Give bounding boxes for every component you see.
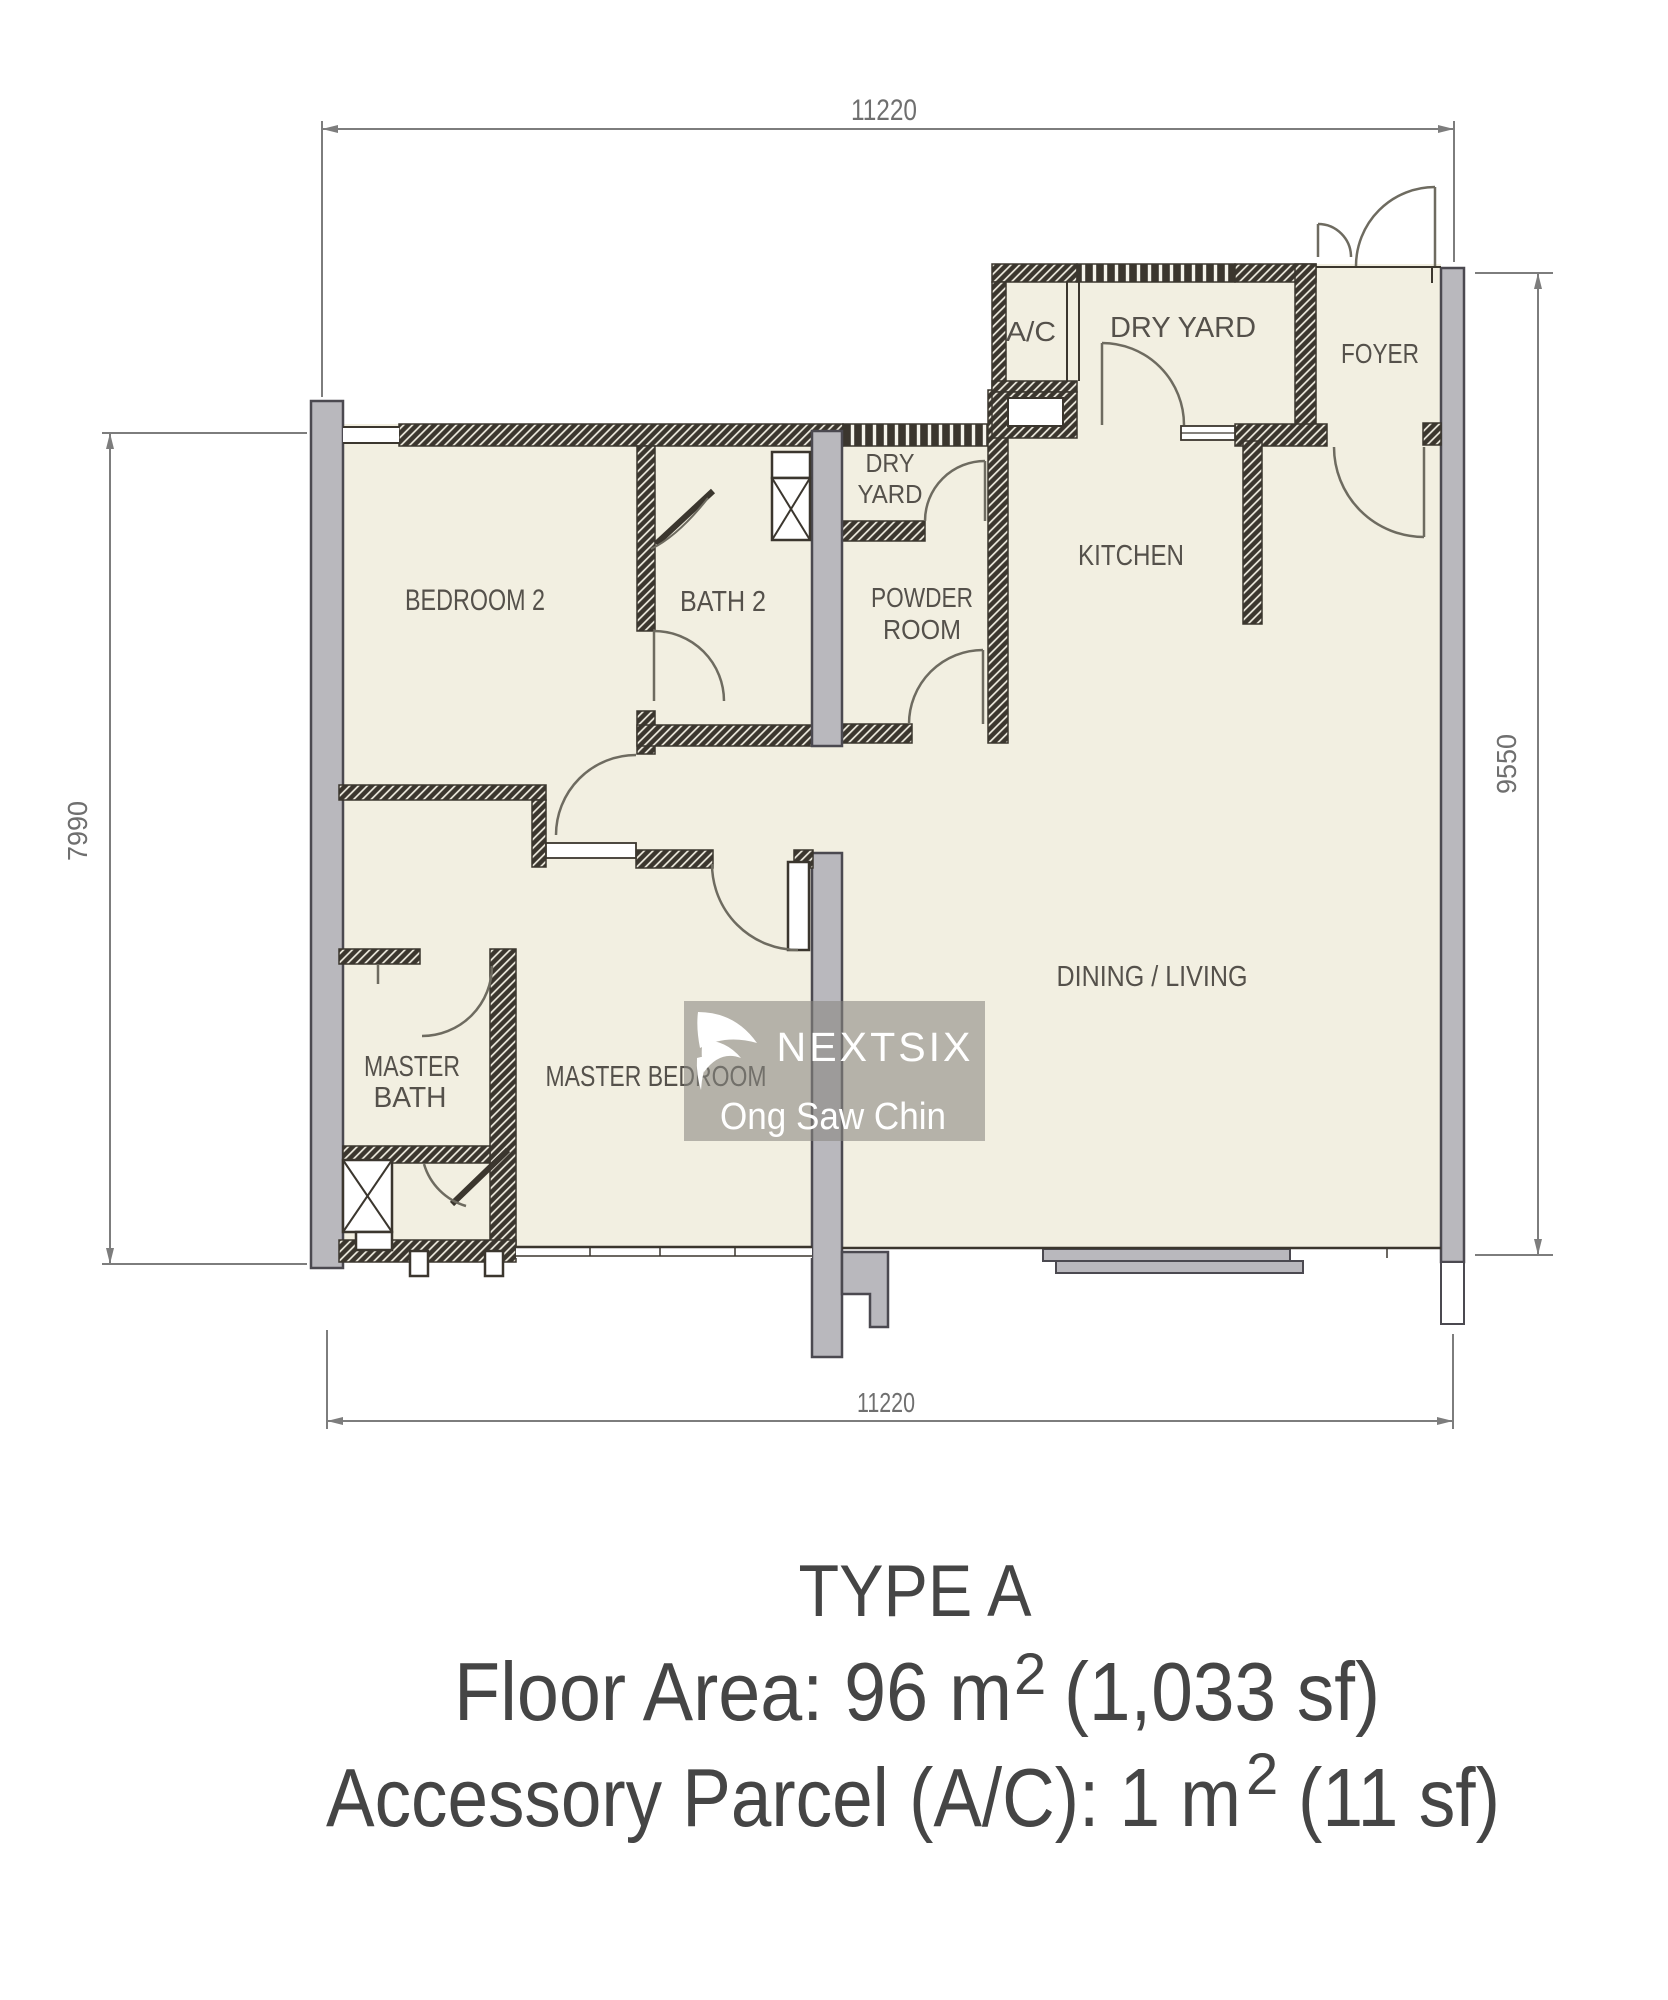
svg-text:A/C: A/C bbox=[1006, 316, 1056, 347]
svg-text:TYPE A: TYPE A bbox=[799, 1551, 1032, 1632]
svg-text:MASTER: MASTER bbox=[364, 1051, 460, 1083]
svg-text:FOYER: FOYER bbox=[1341, 338, 1419, 369]
svg-text:(11 sf): (11 sf) bbox=[1298, 1751, 1500, 1844]
svg-text:YARD: YARD bbox=[858, 479, 923, 509]
svg-text:DINING / LIVING: DINING / LIVING bbox=[1057, 961, 1248, 993]
svg-text:2: 2 bbox=[1246, 1742, 1278, 1807]
svg-text:BATH 2: BATH 2 bbox=[680, 586, 766, 618]
svg-text:DRY: DRY bbox=[866, 448, 915, 478]
svg-text:KITCHEN: KITCHEN bbox=[1078, 540, 1184, 572]
svg-text:(1,033 sf): (1,033 sf) bbox=[1064, 1645, 1380, 1738]
svg-text:Floor Area: 96 m: Floor Area: 96 m bbox=[454, 1645, 1012, 1738]
svg-text:POWDER: POWDER bbox=[871, 582, 973, 613]
svg-text:BATH: BATH bbox=[374, 1082, 447, 1114]
svg-text:NEXTSIX: NEXTSIX bbox=[777, 1024, 974, 1070]
svg-text:ROOM: ROOM bbox=[883, 614, 961, 645]
svg-text:11220: 11220 bbox=[857, 1387, 915, 1418]
svg-text:2: 2 bbox=[1014, 1642, 1046, 1707]
svg-text:11220: 11220 bbox=[851, 94, 917, 127]
svg-text:Accessory Parcel (A/C): 1 m: Accessory Parcel (A/C): 1 m bbox=[326, 1751, 1241, 1844]
svg-text:7990: 7990 bbox=[62, 801, 93, 861]
svg-text:9550: 9550 bbox=[1491, 734, 1522, 794]
svg-text:BEDROOM 2: BEDROOM 2 bbox=[405, 584, 545, 617]
svg-text:Ong Saw Chin: Ong Saw Chin bbox=[720, 1096, 946, 1138]
svg-text:DRY YARD: DRY YARD bbox=[1110, 312, 1256, 344]
